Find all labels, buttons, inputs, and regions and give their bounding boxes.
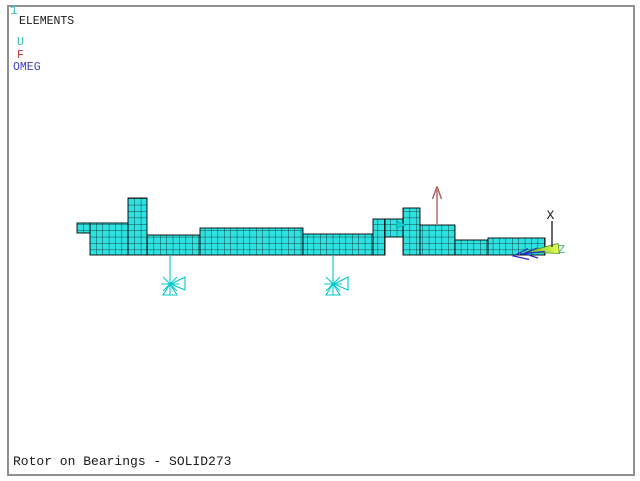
legend-item-u: U (17, 37, 24, 49)
rotor-step-up (373, 219, 385, 255)
triad-x-label: X (547, 208, 555, 223)
rotor-shaft-b (303, 234, 373, 255)
graphics-viewport[interactable]: X Z (0, 0, 640, 481)
rotor-mid-block (200, 228, 303, 255)
rotor-step-down (455, 240, 488, 255)
force-arrow-icon (433, 187, 442, 225)
rotor-right-block (420, 225, 455, 255)
rotor-collar-overhang (385, 219, 403, 237)
plot-title: Rotor on Bearings - SOLID273 (13, 455, 231, 469)
legend-item-omeg: OMEG (13, 62, 41, 74)
bearing-symbol-1 (161, 255, 185, 295)
rotor-disk-1 (128, 198, 147, 255)
ansys-graphics-window: X Z 1 ELEMENTS U F OMEG Rotor on Bearing… (0, 0, 640, 481)
rotor-left-block (90, 223, 128, 255)
bearing-symbol-2 (324, 255, 348, 295)
window-number: 1 (10, 4, 18, 18)
triad-z-label: Z (558, 243, 565, 257)
rotor-disk-2 (403, 208, 420, 255)
display-mode-label: ELEMENTS (19, 16, 74, 28)
rotor-left-tab (77, 223, 90, 233)
rotor-mesh (77, 198, 545, 255)
rotor-shaft-a (147, 235, 200, 255)
